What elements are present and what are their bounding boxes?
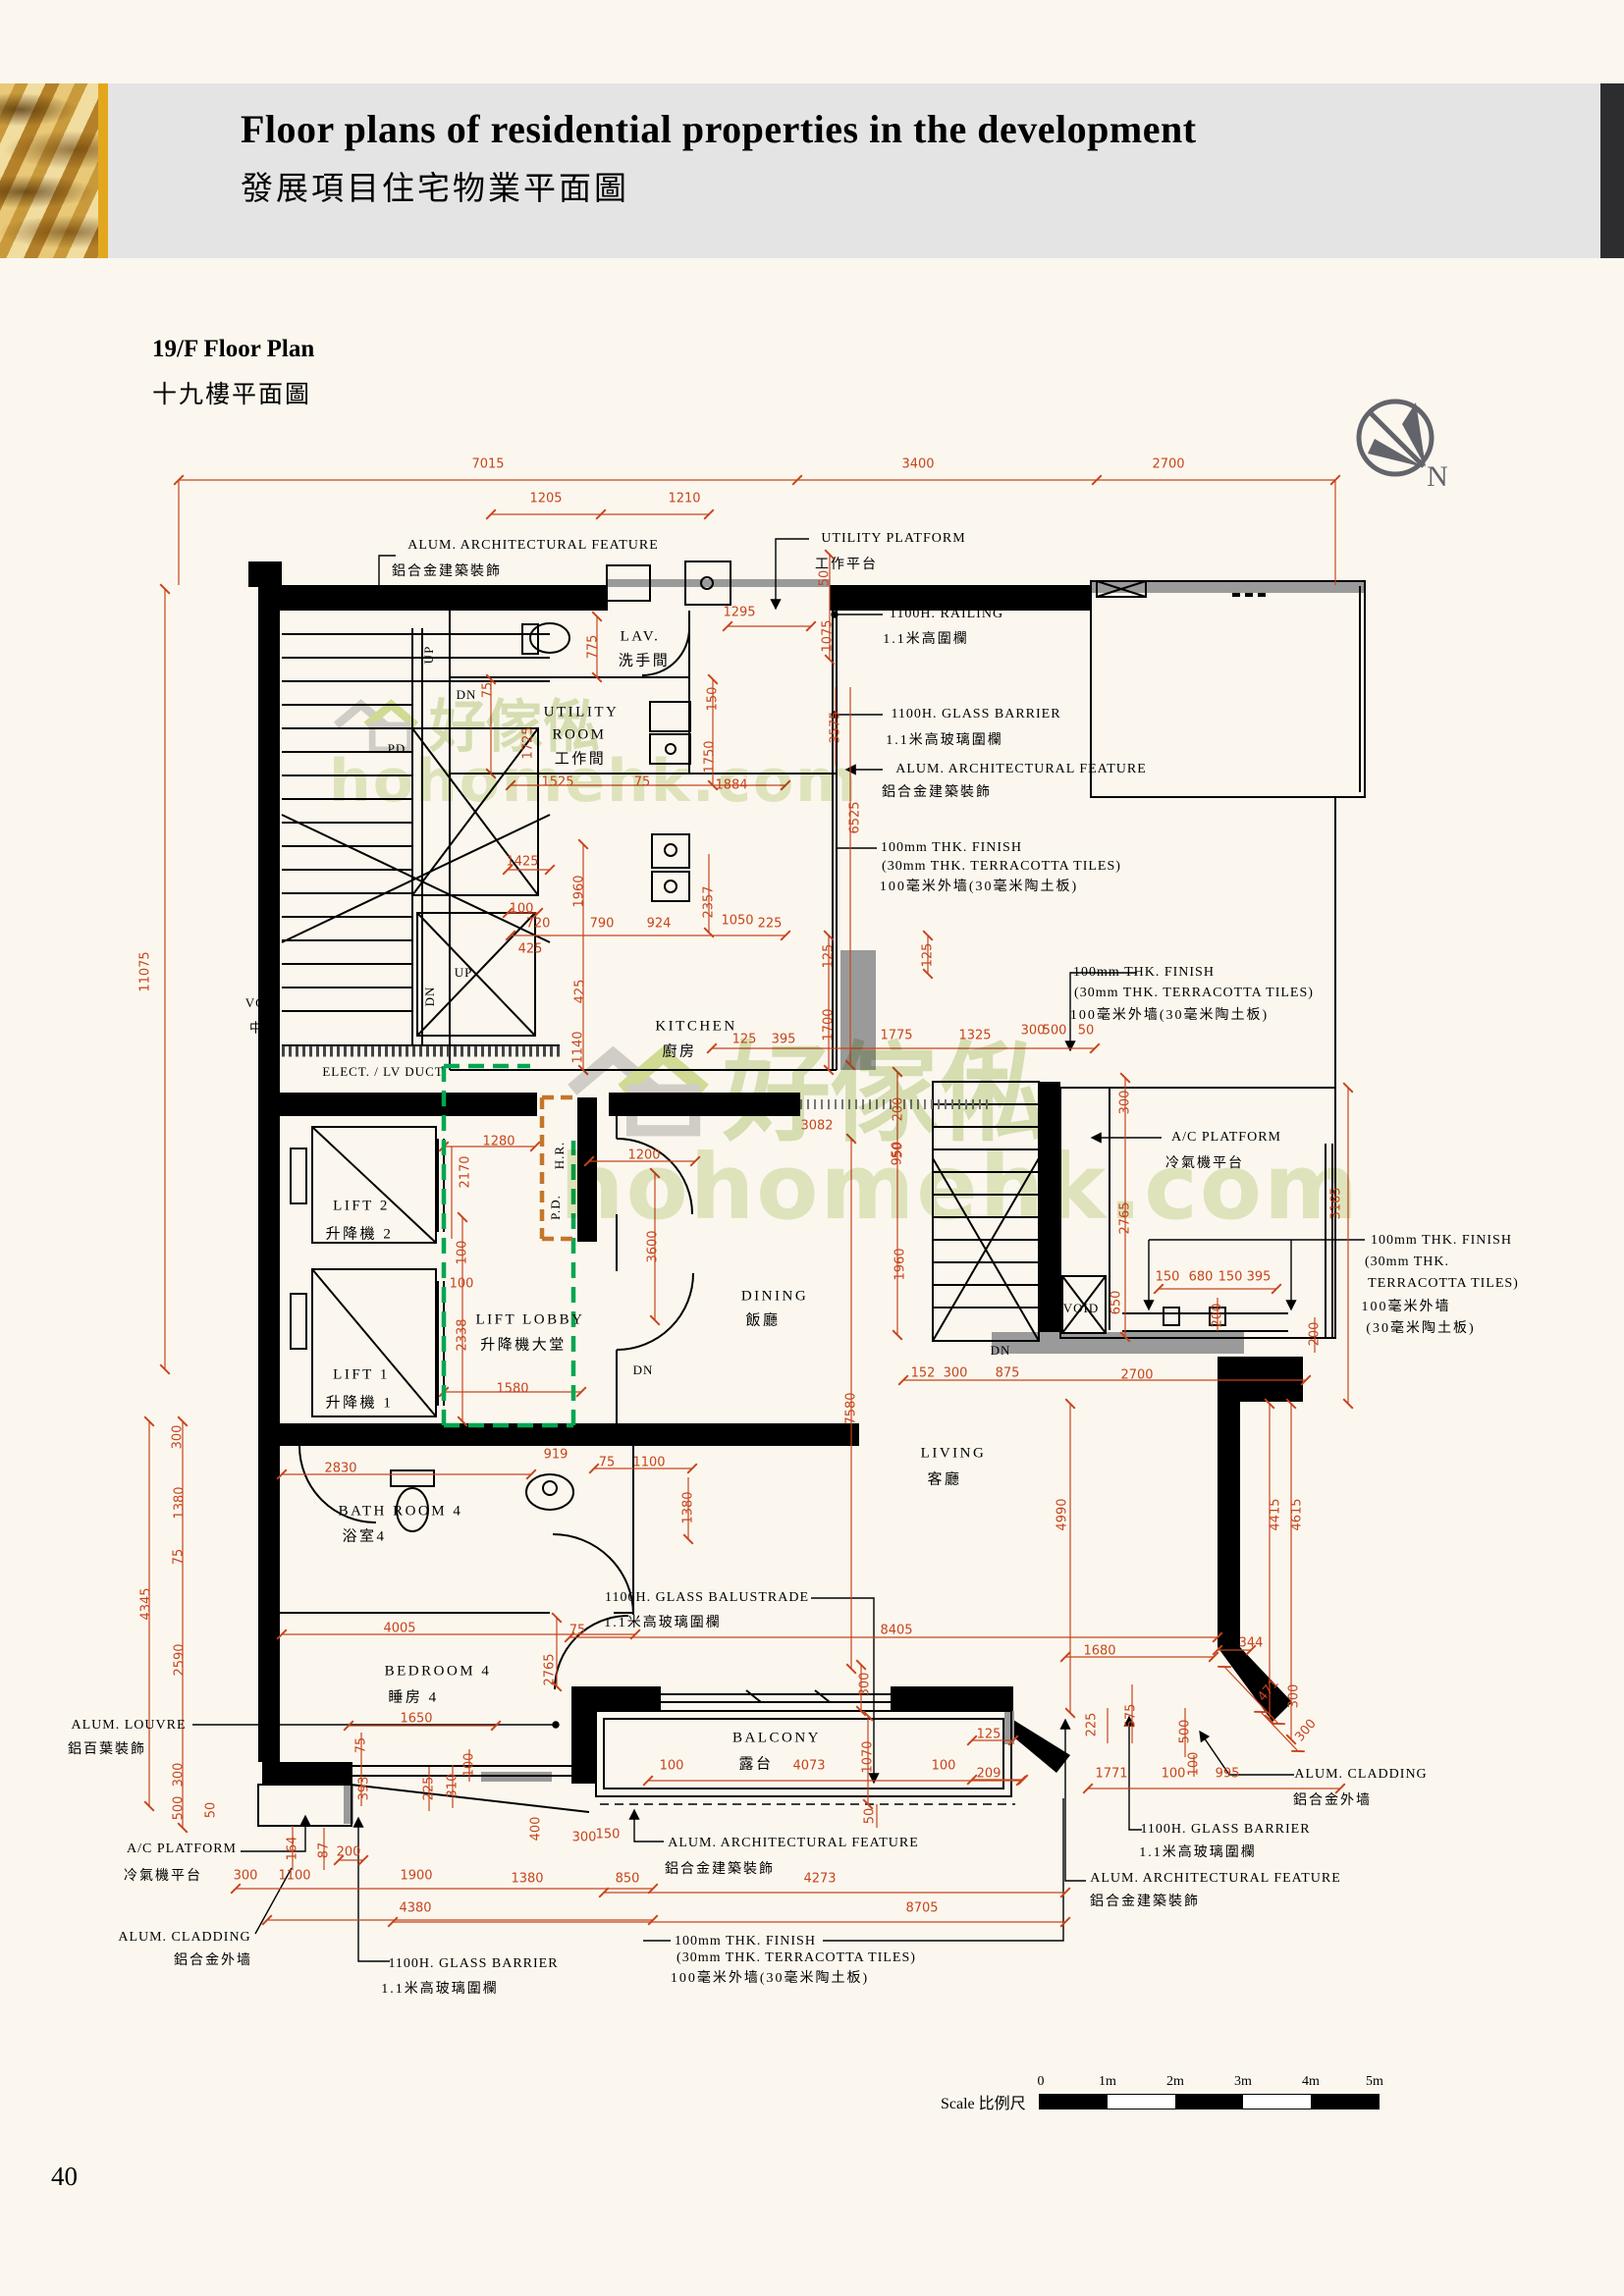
room-label: 升降機 1 [326, 1392, 394, 1413]
ann-label: UTILITY PLATFORM [821, 531, 965, 547]
room-label: LIVING [921, 1446, 987, 1463]
dim-label: 200 [337, 1845, 361, 1860]
ann-label: A/C PLATFORM [1171, 1130, 1281, 1146]
dim-label: 924 [647, 917, 672, 932]
walls-thin [258, 561, 1365, 1826]
dim-label: 100 [1162, 1767, 1186, 1782]
dim-label: 775 [586, 635, 601, 660]
ann-label: 1100H. RAILING [890, 607, 1003, 622]
dim-label: 500 [1178, 1720, 1193, 1744]
dim-label: 1100 [278, 1869, 310, 1884]
dim-label: 75 [569, 1624, 586, 1638]
dim-label: 1210 [668, 492, 700, 507]
dim-label: 225 [422, 1777, 437, 1801]
dim-label: 4273 [803, 1872, 836, 1887]
dim-label: 100 [932, 1759, 956, 1774]
ann-label: ALUM. ARCHITECTURAL FEATURE [895, 762, 1147, 777]
dim-label: 919 [544, 1448, 568, 1463]
room-label: LAV. [621, 629, 661, 646]
ann-label: 100mm THK. FINISH [675, 1934, 816, 1949]
dim-label: 1200 [627, 1148, 660, 1163]
room-label: 露台 [738, 1753, 773, 1774]
ann-label: ALUM. LOUVRE [72, 1718, 187, 1734]
room-label: DINING [741, 1289, 808, 1306]
dim-label: 310 [446, 1774, 460, 1798]
scale-tick-label: 1m [1099, 2074, 1116, 2090]
dim-label: 425 [573, 980, 588, 1004]
room-label: LIFT 1 [333, 1367, 390, 1384]
ann-label: ALUM. ARCHITECTURAL FEATURE [1090, 1871, 1341, 1887]
ann-label: ALUM. CLADDING [118, 1930, 250, 1946]
dim-label: 150 [1218, 1270, 1243, 1285]
dim-label: 6525 [848, 801, 863, 833]
dim-label: 1580 [496, 1382, 528, 1397]
dim-label: 209 [977, 1767, 1001, 1782]
room-label: 浴室4 [342, 1525, 386, 1546]
ann-label: 100mm THK. FINISH [1073, 965, 1215, 981]
dim-label: 1650 [400, 1712, 432, 1727]
room-label: 工作間 [555, 748, 607, 769]
scale-tick-label: 5m [1366, 2074, 1383, 2090]
ann-label: 鋁合金建築裝飾 [1090, 1891, 1200, 1910]
room-label: LIFT LOBBY [476, 1312, 585, 1329]
dim-label: 1050 [721, 914, 753, 929]
dim-label: 8705 [905, 1901, 938, 1916]
dim-label: 300 [1118, 1091, 1133, 1115]
dim-label: 1425 [506, 855, 538, 870]
ann-label: (30毫米陶土板) [1366, 1317, 1475, 1337]
dim-label: 1884 [715, 778, 747, 793]
dim-label: 300 [172, 1763, 187, 1788]
dim-label: 50 [863, 1808, 878, 1825]
dim-label: 400 [529, 1817, 544, 1842]
ann-label: 冷氣機平台 [124, 1865, 202, 1885]
dim-label: 500 [172, 1796, 187, 1821]
room-label: DN [633, 1362, 654, 1378]
dim-label: 3600 [646, 1230, 661, 1262]
ann-label: 鋁合金建築裝飾 [665, 1858, 775, 1878]
dim-label: 2830 [324, 1462, 356, 1476]
dim-label: 50 [204, 1802, 219, 1819]
dim-label: 4415 [1269, 1498, 1283, 1530]
room-label: UTILITY [544, 705, 620, 721]
room-label: ELECT. / LV DUCT [322, 1064, 443, 1080]
dim-label: 300 [572, 1831, 597, 1845]
ann-label: 冷氣機平台 [1165, 1152, 1244, 1172]
scale-segment [1243, 2095, 1311, 2109]
dim-label: 995 [1216, 1767, 1240, 1782]
ann-label: 1100H. GLASS BARRIER [1140, 1822, 1310, 1838]
dim-label: 152 [911, 1366, 936, 1381]
dim-label: 3082 [800, 1119, 833, 1134]
dim-label: 125 [732, 1033, 757, 1047]
room-label: 洗手間 [619, 650, 671, 670]
dim-label: 650 [1110, 1291, 1124, 1315]
dim-label: 1700 [822, 1008, 837, 1041]
dim-label: 500 [1043, 1024, 1067, 1039]
ann-label: 1.1米高玻璃圍欄 [604, 1612, 722, 1631]
dimension-lines [149, 480, 1348, 1922]
dim-label: 50 [1078, 1024, 1095, 1039]
dim-label: 300 [1287, 1684, 1302, 1709]
room-label: VOID [1063, 1301, 1100, 1316]
scale-label: Scale 比例尺 [941, 2090, 1026, 2113]
dim-label: 1140 [571, 1031, 586, 1063]
dim-label: 2357 [702, 885, 717, 918]
dim-label: 2700 [1120, 1368, 1153, 1383]
dim-label: 1750 [703, 740, 718, 773]
dim-label: 1380 [173, 1486, 188, 1519]
ann-label: (30mm THK. TERRACOTTA TILES) [677, 1950, 916, 1966]
ann-label: 鋁百葉裝飾 [68, 1738, 146, 1758]
north-arrow-icon [1359, 401, 1432, 474]
dim-label: 100 [510, 902, 534, 917]
ann-label: 1100H. GLASS BALUSTRADE [605, 1590, 809, 1606]
dim-label: 395 [772, 1033, 796, 1047]
dim-label: 1771 [1095, 1767, 1127, 1782]
dim-label: 4615 [1290, 1498, 1305, 1530]
dim-label: 300 [234, 1869, 258, 1884]
dim-label: 150 [596, 1828, 621, 1842]
ann-label: 鋁合金外墙 [1293, 1789, 1372, 1809]
dim-label: 200 [892, 1097, 906, 1122]
dim-label: 150 [706, 687, 721, 712]
room-label: 升降機 2 [326, 1223, 394, 1244]
room-label: DN [457, 687, 477, 703]
dim-label: 790 [590, 917, 615, 932]
dim-label: 4073 [792, 1759, 825, 1774]
dim-label: 300 [171, 1425, 186, 1450]
dim-label: 4005 [383, 1622, 415, 1636]
dim-label: 7015 [471, 457, 504, 472]
room-label: UP [421, 646, 437, 665]
ann-label: 1.1米高玻璃圍欄 [381, 1978, 499, 1998]
dim-label: 75 [481, 682, 496, 699]
ann-label: 鋁合金建築裝飾 [882, 781, 992, 801]
dim-label: 2765 [1118, 1201, 1133, 1234]
ann-label: A/C PLATFORM [127, 1842, 237, 1857]
dim-label: 75 [599, 1456, 616, 1470]
room-label: 睡房 4 [388, 1686, 438, 1707]
scale-tick-label: 4m [1302, 2074, 1320, 2090]
room-label: VOID [245, 995, 282, 1011]
dim-label: 164 [286, 1837, 300, 1861]
dim-label: 100 [1187, 1752, 1202, 1777]
ann-label: 1.1米高玻璃圍欄 [886, 729, 1003, 749]
dim-label: 225 [758, 917, 783, 932]
room-label: 中空 [249, 1018, 277, 1037]
dim-label: 1775 [880, 1029, 912, 1043]
dim-label: 4990 [1056, 1498, 1070, 1530]
room-label: LIFT 2 [333, 1199, 390, 1215]
dim-label: 100 [456, 1241, 470, 1265]
dim-label: 150 [1156, 1270, 1180, 1285]
dim-label: 1680 [1083, 1644, 1115, 1659]
room-label: DN [991, 1343, 1011, 1359]
dim-label: 1960 [893, 1248, 908, 1280]
room-label: UP [455, 965, 473, 981]
dim-label: 1725 [521, 726, 536, 759]
dim-label: 720 [526, 917, 551, 932]
dim-label: 3400 [901, 457, 934, 472]
room-label: KITCHEN [655, 1019, 736, 1036]
dim-label: 300 [944, 1366, 968, 1381]
ann-label: 100mm THK. FINISH [881, 840, 1022, 856]
dim-label: 75 [634, 775, 651, 790]
dim-label: 1295 [723, 606, 755, 620]
dim-label: 575 [1124, 1704, 1139, 1729]
ann-label: ALUM. ARCHITECTURAL FEATURE [668, 1836, 919, 1851]
scale-segment [1040, 2095, 1108, 2109]
dim-label: 3575 [829, 711, 843, 743]
dim-label: 87 [317, 1842, 332, 1859]
dim-label: 1070 [861, 1740, 876, 1773]
dim-label: 2590 [173, 1643, 188, 1676]
dim-label: 75 [354, 1737, 369, 1754]
dim-label: 100 [450, 1277, 474, 1292]
room-label: 飯廳 [745, 1309, 780, 1330]
room-label: BATH ROOM 4 [339, 1504, 463, 1521]
room-label: BEDROOM 4 [385, 1664, 492, 1681]
ann-label: TERRACOTTA TILES) [1368, 1276, 1519, 1292]
scale-tick-label: 2m [1166, 2074, 1184, 2090]
dim-label: 125 [977, 1728, 1001, 1742]
dim-label: 100 [462, 1753, 477, 1778]
dim-label: 2170 [459, 1155, 473, 1188]
room-label: ROOM [552, 727, 606, 744]
room-label: 升降機大堂 [480, 1334, 567, 1355]
dim-label: 1960 [572, 875, 587, 907]
dim-label: 50 [818, 570, 833, 587]
dim-label: 950 [891, 1142, 905, 1166]
room-label: P.D. [548, 1195, 564, 1220]
scale-bar [1039, 2094, 1380, 2109]
scale-segment [1311, 2095, 1379, 2109]
dim-label: 1280 [482, 1135, 514, 1149]
dim-label: 1100 [632, 1456, 665, 1470]
room-label: PD [388, 741, 406, 757]
ann-label: ALUM. CLADDING [1294, 1767, 1427, 1783]
dim-label: 2765 [543, 1653, 558, 1685]
ann-label: 鋁合金建築裝飾 [392, 561, 502, 580]
ann-label: 1.1米高圍欄 [883, 628, 969, 648]
room-label: H.R. [552, 1142, 568, 1170]
dim-label: 1325 [958, 1029, 991, 1043]
dim-label: 344 [1239, 1636, 1264, 1651]
dim-label: 1900 [400, 1869, 432, 1884]
dim-label: 1380 [511, 1872, 543, 1887]
north-label: N [1427, 460, 1448, 494]
dim-label: 4345 [139, 1587, 154, 1620]
dim-label: 200 [1211, 1304, 1225, 1328]
ann-label: 100毫米外墙(30毫米陶土板) [671, 1967, 869, 1987]
scale-tick-label: 3m [1234, 2074, 1252, 2090]
dim-label: 1380 [681, 1491, 696, 1523]
room-label: 廚房 [662, 1041, 696, 1061]
dim-label: 75 [172, 1549, 187, 1566]
dim-label: 393 [357, 1777, 372, 1801]
ann-label: 1100H. GLASS BARRIER [891, 707, 1060, 722]
scale-segment [1108, 2095, 1175, 2109]
ann-label: (30mm THK. TERRACOTTA TILES) [882, 859, 1121, 875]
ann-label: 100mm THK. FINISH [1371, 1233, 1512, 1249]
dim-label: 125 [822, 944, 837, 969]
dim-label: 1075 [821, 619, 836, 652]
ann-label: 1100H. GLASS BARRIER [388, 1956, 558, 1972]
ann-label: 1.1米高玻璃圍欄 [1139, 1842, 1257, 1861]
dim-label: 2338 [456, 1318, 470, 1351]
room-label: DN [422, 987, 438, 1007]
dim-label: 1525 [541, 775, 573, 790]
scale-tick-label: 0 [1038, 2074, 1045, 2090]
dim-label: 850 [616, 1872, 640, 1887]
scale-segment [1175, 2095, 1243, 2109]
room-label: BALCONY [732, 1731, 821, 1747]
dim-label: 425 [518, 942, 543, 957]
dim-label: 200 [1308, 1322, 1323, 1347]
dim-label: 225 [1085, 1713, 1100, 1737]
dim-label: 2700 [1152, 457, 1184, 472]
dim-label: 1205 [529, 492, 562, 507]
dim-label: 875 [996, 1366, 1020, 1381]
room-label: 客廳 [927, 1468, 961, 1489]
dim-label: 100 [660, 1759, 684, 1774]
ann-label: 鋁合金外墙 [174, 1949, 252, 1969]
dim-label: 8405 [880, 1624, 912, 1638]
dim-label: 11075 [138, 951, 153, 991]
ann-label: (30mm THK. [1365, 1255, 1449, 1270]
ann-label: 100毫米外墙(30毫米陶土板) [880, 876, 1078, 895]
dim-label: 300 [858, 1673, 873, 1697]
dim-label: 680 [1189, 1270, 1214, 1285]
dim-label: 7580 [844, 1392, 859, 1424]
dim-label: 395 [1247, 1270, 1272, 1285]
ann-label: 100毫米外墙(30毫米陶土板) [1070, 1004, 1269, 1024]
ann-label: 100毫米外墙 [1362, 1296, 1451, 1315]
dim-label: 4380 [399, 1901, 431, 1916]
ann-label: ALUM. ARCHITECTURAL FEATURE [407, 538, 659, 554]
dim-label: 3165 [1329, 1187, 1344, 1219]
ann-label: (30mm THK. TERRACOTTA TILES) [1074, 986, 1314, 1001]
dim-label: 125 [921, 943, 936, 968]
